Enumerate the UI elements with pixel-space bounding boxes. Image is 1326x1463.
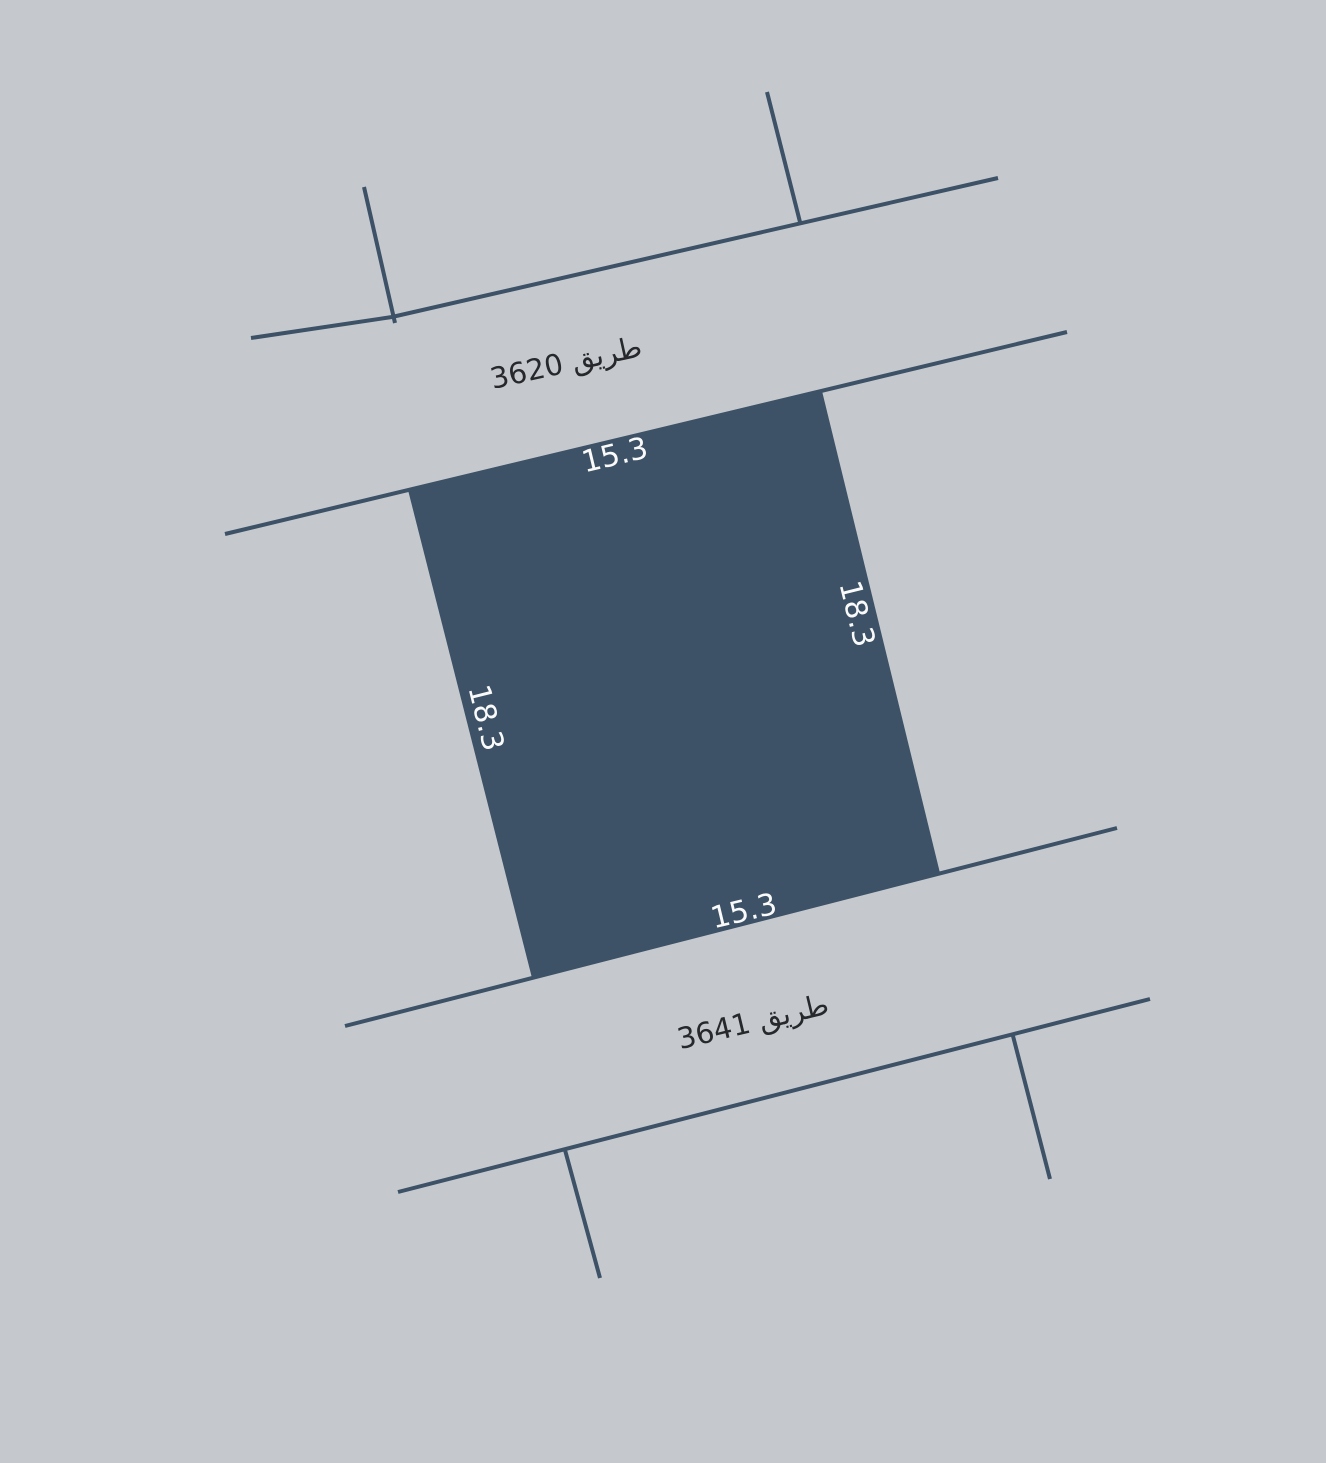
north-parcel-divider-tick-left — [364, 187, 395, 323]
map-canvas — [0, 0, 1326, 1463]
south-parcel-divider-tick-right — [1013, 1036, 1050, 1179]
cadastral-parcel-map: طريق 3620 طريق 3641 15.3 18.3 15.3 18.3 — [0, 0, 1326, 1463]
road-3620-north-boundary-line — [251, 178, 998, 338]
north-parcel-divider-tick-right — [767, 92, 800, 222]
south-parcel-divider-tick-left — [565, 1150, 600, 1278]
